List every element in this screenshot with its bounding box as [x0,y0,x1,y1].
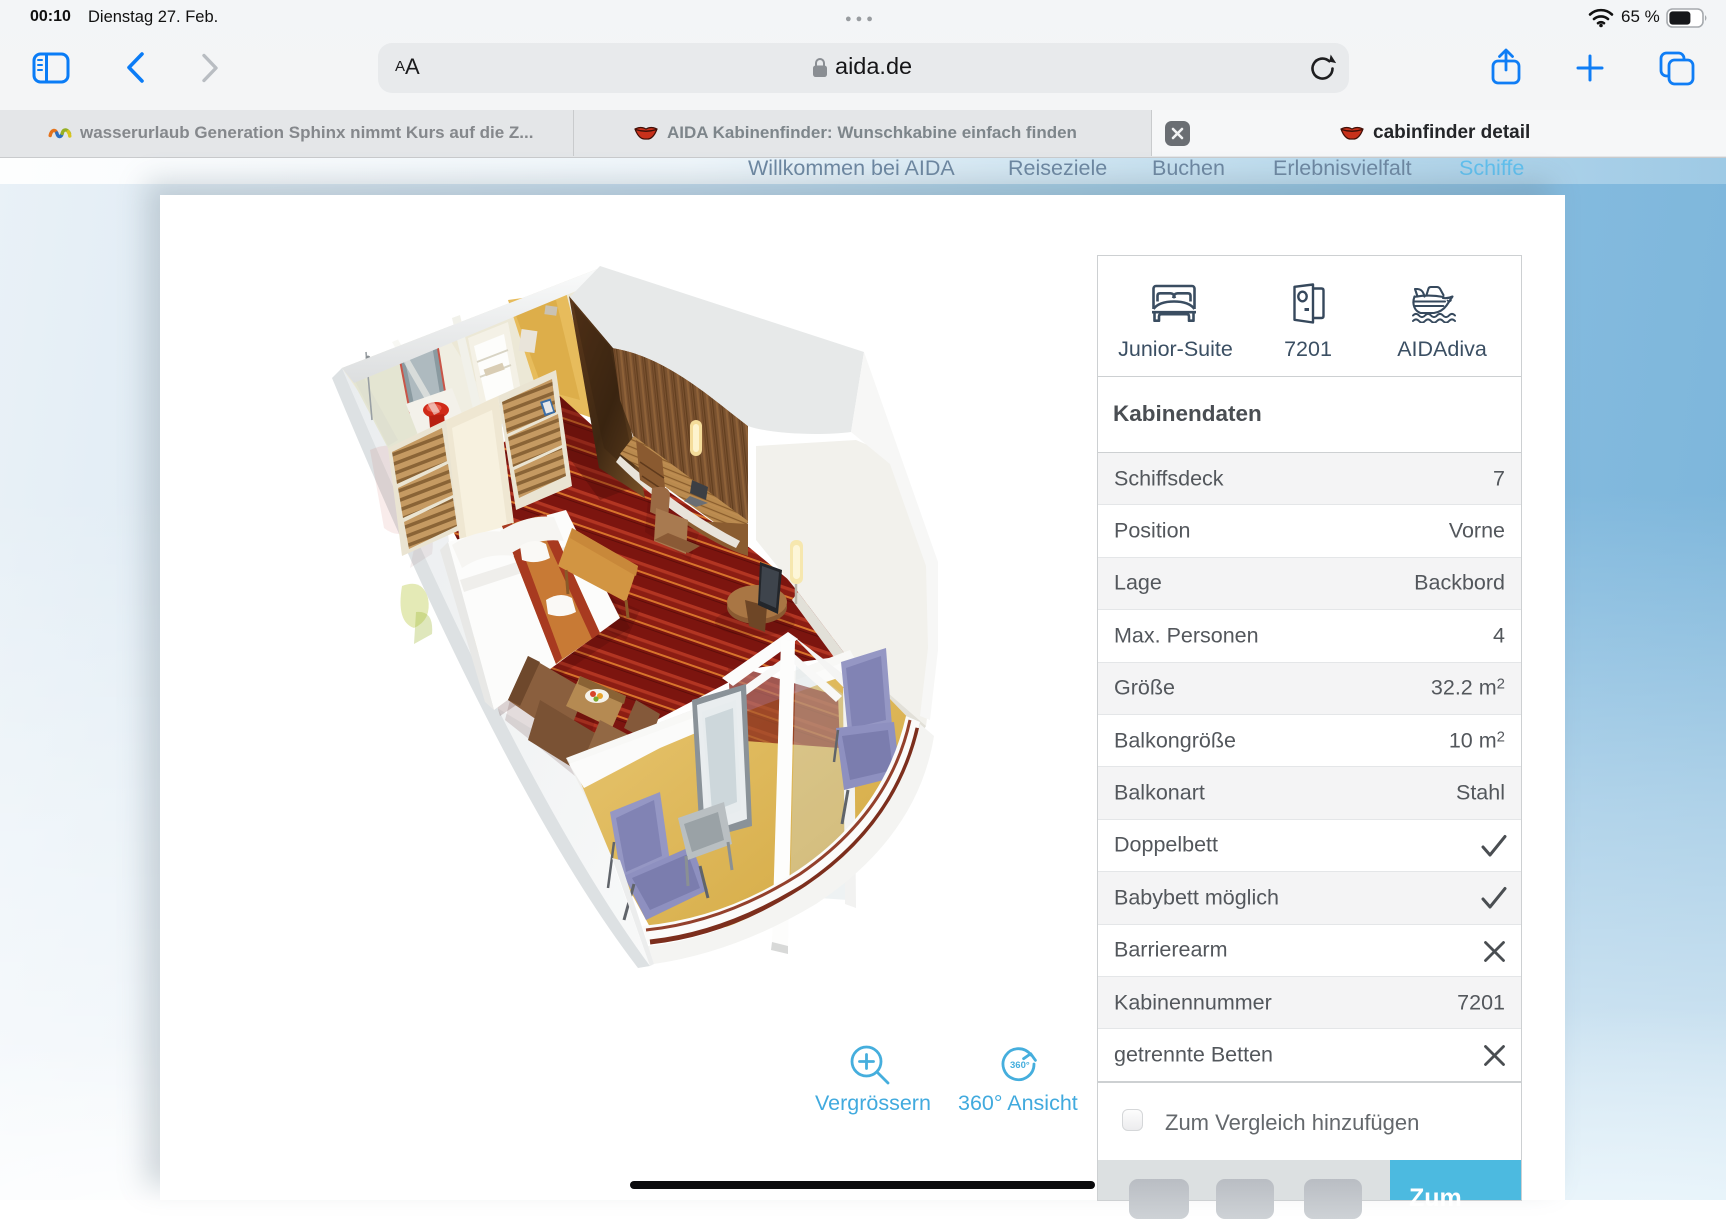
svg-text:360°: 360° [1010,1060,1030,1071]
